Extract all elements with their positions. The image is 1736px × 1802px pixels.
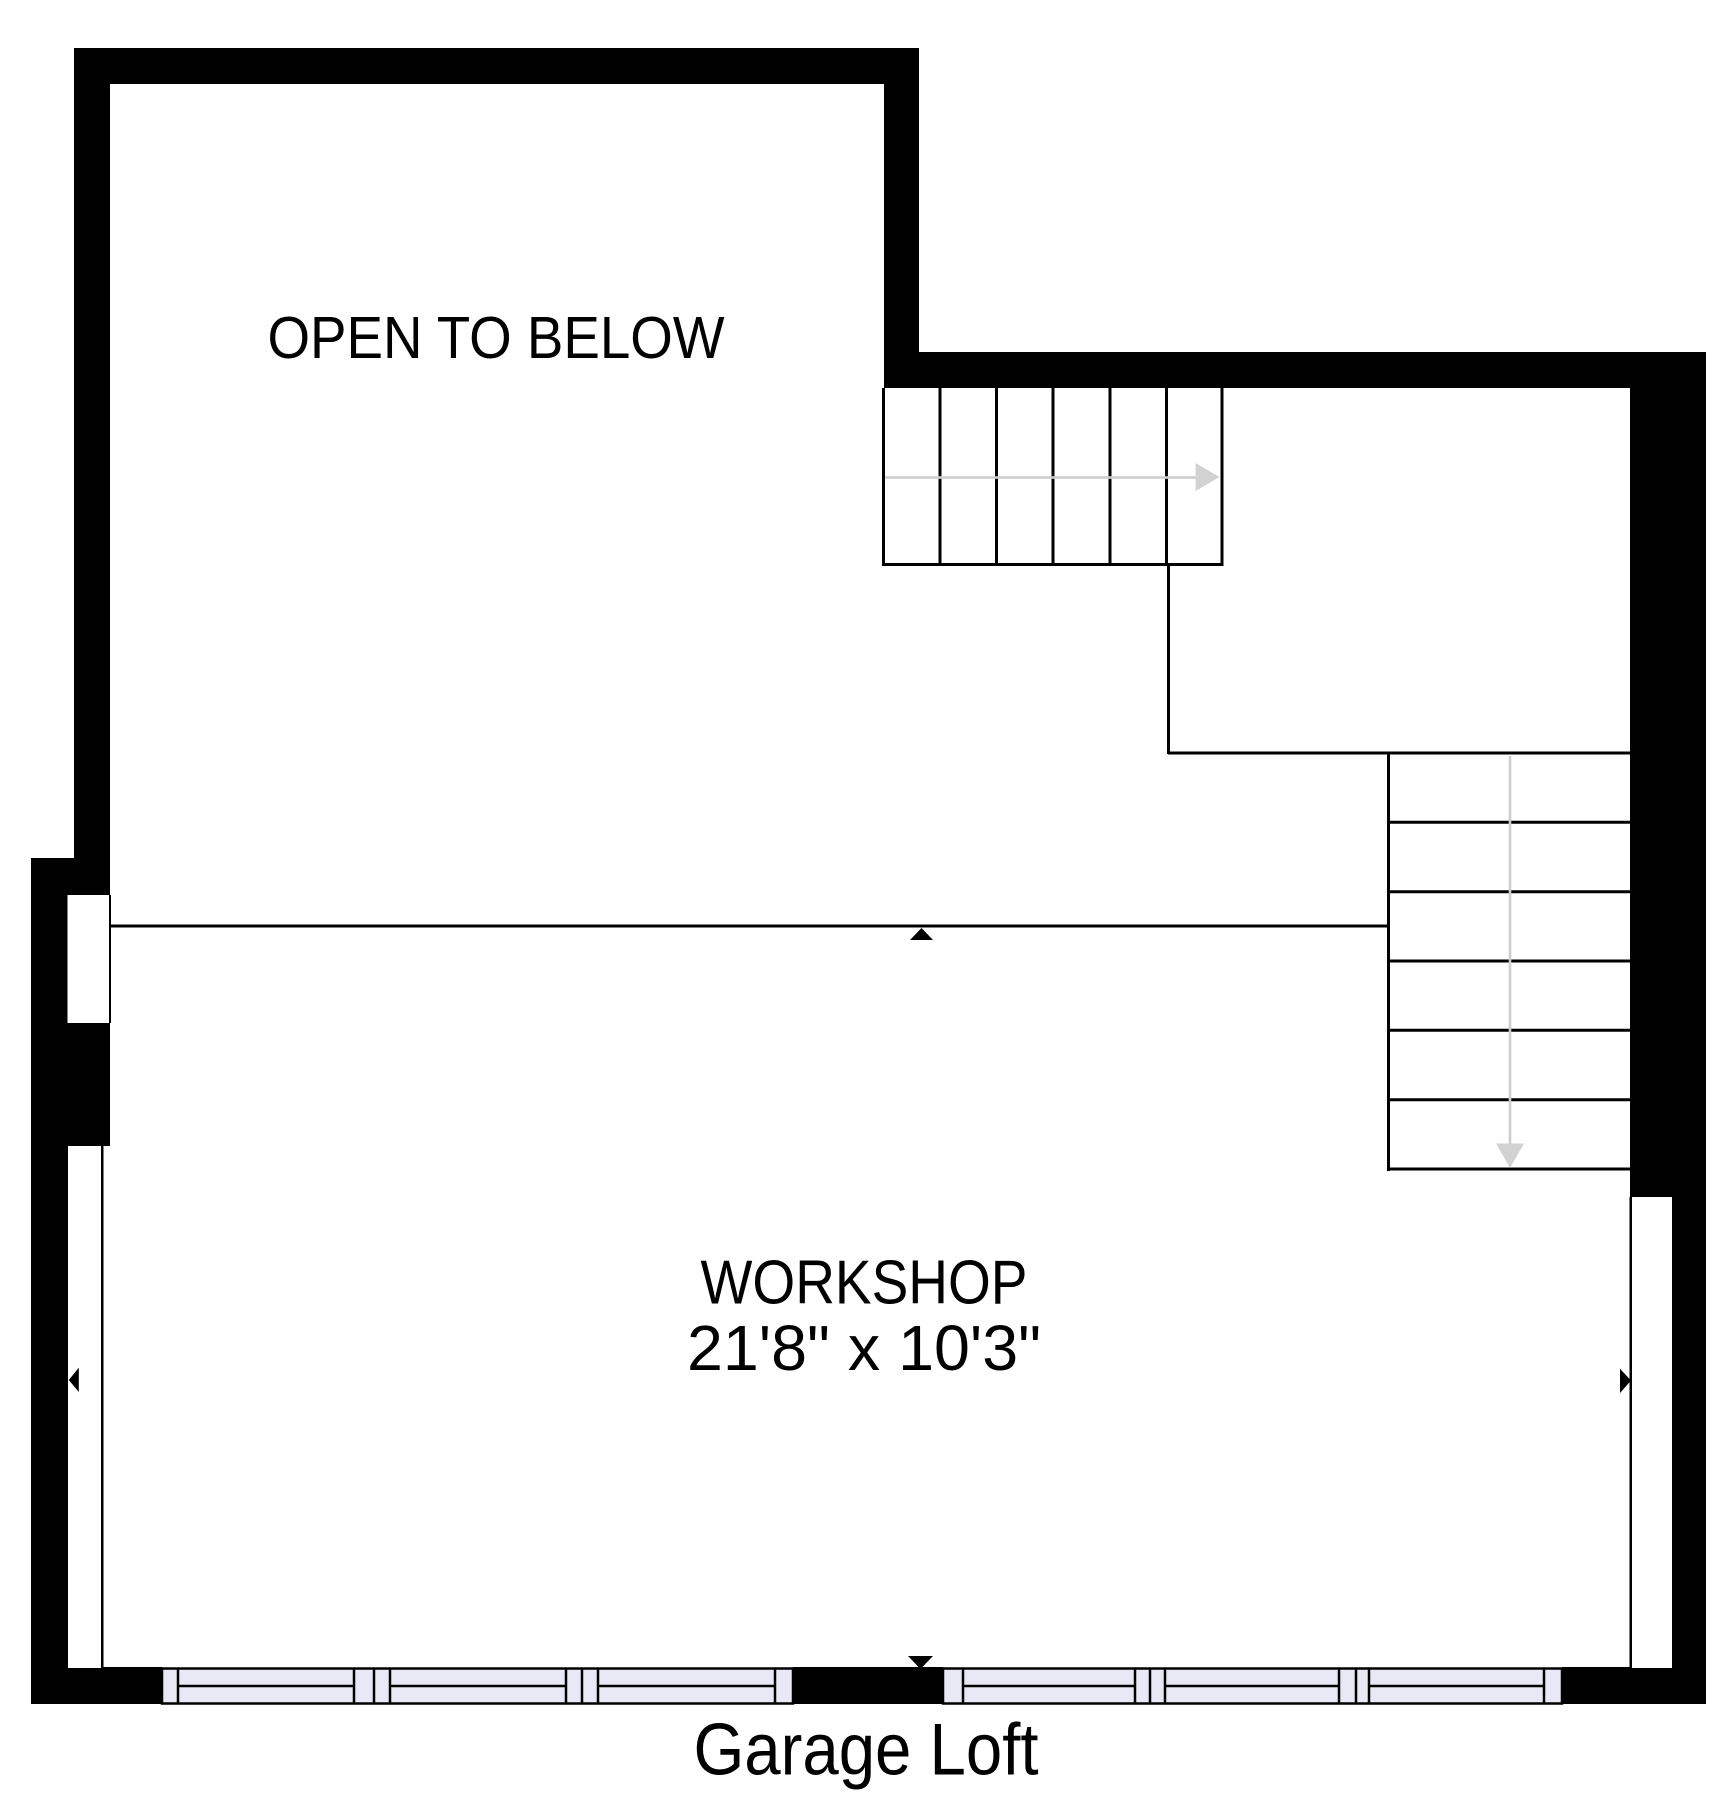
svg-text:OPEN TO BELOW: OPEN TO BELOW	[268, 304, 725, 371]
svg-text:Garage Loft: Garage Loft	[694, 1710, 1039, 1791]
svg-text:21'8" x 10'3": 21'8" x 10'3"	[687, 1312, 1041, 1384]
svg-text:WORKSHOP: WORKSHOP	[701, 1249, 1028, 1318]
